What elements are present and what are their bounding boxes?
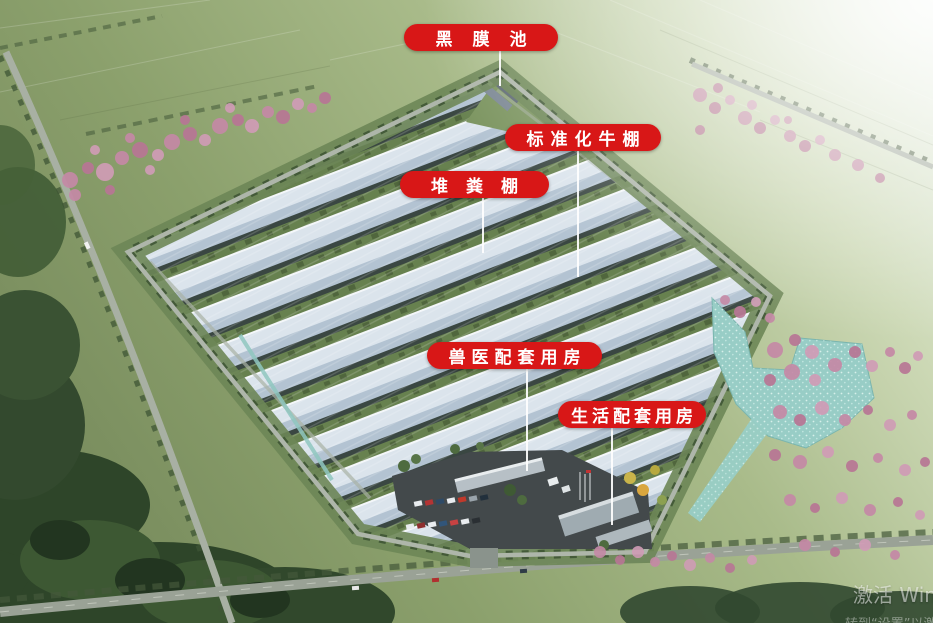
label-text: 生活配套用房 <box>571 402 697 427</box>
label-text: 黑膜池 <box>436 25 547 50</box>
haze-overlay <box>0 0 933 623</box>
label-text: 标准化牛棚 <box>527 125 647 150</box>
windows-activation-watermark-subtext: 转到“设置”以激活 Windows。 <box>845 617 933 623</box>
windows-activation-watermark: 激活 Windows <box>853 584 933 606</box>
site-aerial-rendering <box>0 0 933 623</box>
label-veterinary-support-building: 兽医配套用房 <box>427 342 602 369</box>
label-manure-composting-shed: 堆粪棚 <box>400 171 549 198</box>
label-black-membrane-pond: 黑膜池 <box>404 24 558 51</box>
label-living-support-building: 生活配套用房 <box>558 401 706 428</box>
label-standardized-cattle-shed: 标准化牛棚 <box>505 124 661 151</box>
label-text: 兽医配套用房 <box>449 343 587 368</box>
farm-aerial-screenshot: 黑膜池 标准化牛棚 堆粪棚 兽医配套用房 生活配套用房 激活 Windows 转… <box>0 0 933 623</box>
label-text: 堆粪棚 <box>431 172 536 197</box>
